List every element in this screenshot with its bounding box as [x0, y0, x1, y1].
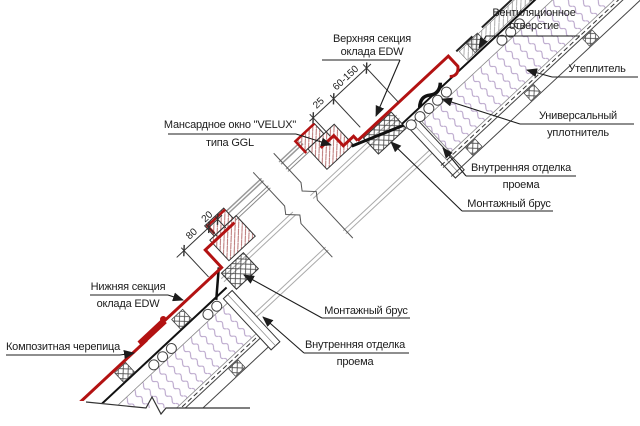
label-lower-flashing-line1: Нижняя секция — [86, 281, 170, 293]
label-window-line2: типа GGL — [163, 137, 297, 149]
label-inner-bottom-line2: проема — [302, 356, 408, 368]
lower-interior-batten — [229, 360, 245, 376]
label-composite-tile: Композитная черепица — [4, 341, 122, 353]
label-inner-bottom-line1: Внутренняя отделка — [302, 339, 408, 351]
label-beam-bottom: Монтажный брус — [320, 305, 412, 317]
label-seal-line2: уплотнитель — [520, 127, 636, 139]
dim-flashing-overlap: 25 — [311, 95, 327, 111]
dim-vent-gap: 60-150 — [331, 63, 362, 93]
label-upper-flashing-line1: Верхняя секция — [318, 33, 426, 45]
label-window-line1: Мансардное окно "VELUX" — [163, 119, 297, 131]
label-vent-line1: Вентиляционное — [480, 7, 588, 19]
label-inner-right-line2: проема — [464, 179, 578, 191]
break-symbol-window — [250, 150, 357, 261]
upper-interior-batten — [466, 139, 482, 155]
drawing-canvas: 25 60-150 80 20 — [0, 0, 640, 426]
dim-apron-length: 80 — [184, 226, 200, 242]
label-insulation: Утеплитель — [556, 63, 638, 75]
upper-interior-batten — [583, 30, 599, 46]
label-lower-flashing-line2: оклада EDW — [86, 298, 170, 310]
label-seal-line1: Универсальный — [520, 110, 636, 122]
label-inner-right-line1: Внутренняя отделка — [464, 162, 578, 174]
label-vent-line2: отверстие — [480, 20, 588, 32]
label-upper-flashing-line2: оклада EDW — [318, 46, 426, 58]
label-beam-right: Монтажный брус — [462, 198, 556, 210]
upper-interior-batten — [524, 85, 540, 101]
